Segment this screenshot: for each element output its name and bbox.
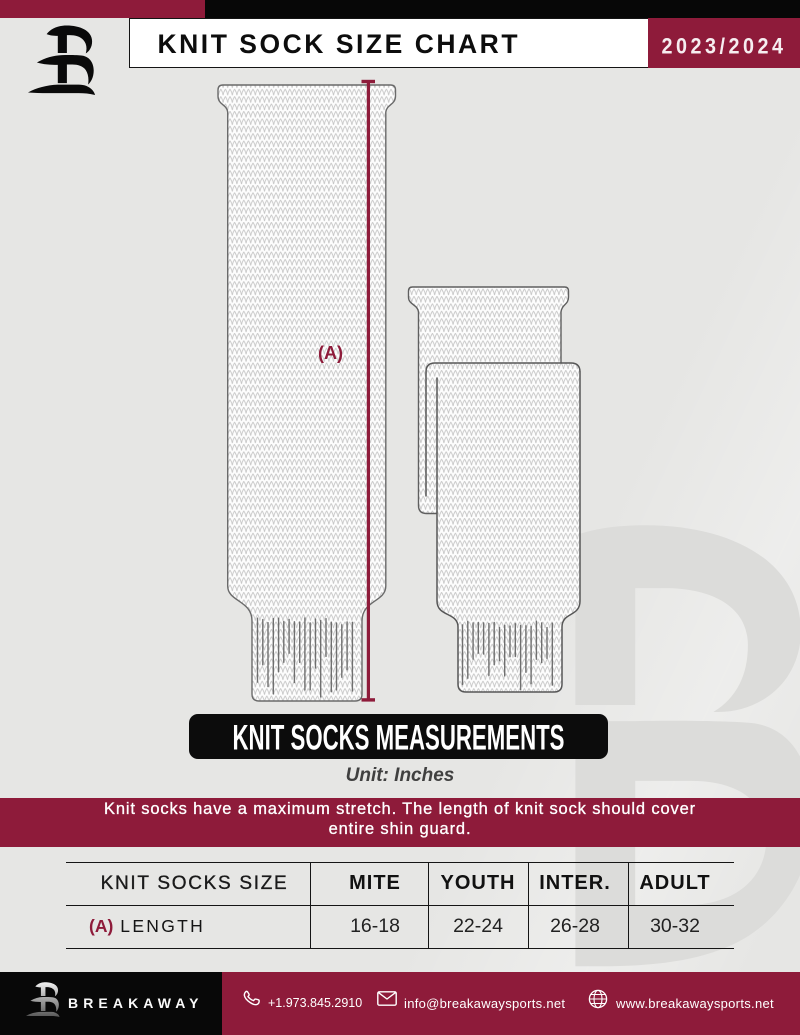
svg-text:KNIT SOCKS MEASUREMENTS: KNIT SOCKS MEASUREMENTS — [233, 719, 565, 758]
svg-text:(A): (A) — [318, 343, 343, 363]
svg-text:2023/2024: 2023/2024 — [662, 33, 787, 58]
svg-text:KNIT SOCK SIZE CHART: KNIT SOCK SIZE CHART — [158, 29, 518, 59]
